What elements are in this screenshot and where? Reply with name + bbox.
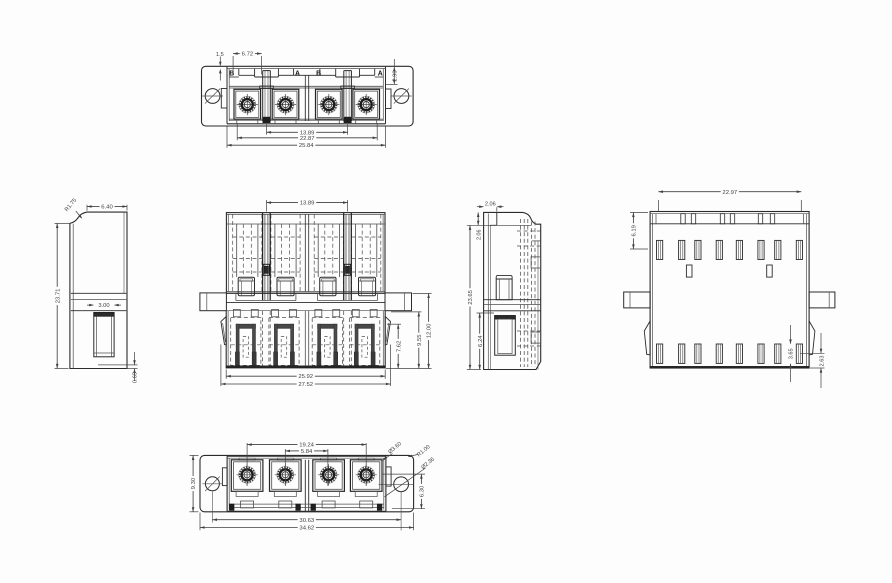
svg-text:6.19: 6.19 bbox=[632, 225, 638, 236]
svg-text:3.65: 3.65 bbox=[789, 348, 795, 359]
svg-text:2.90: 2.90 bbox=[393, 70, 399, 81]
svg-text:6.72: 6.72 bbox=[242, 52, 253, 58]
svg-text:7.62: 7.62 bbox=[396, 341, 402, 352]
svg-text:19.24: 19.24 bbox=[299, 443, 314, 449]
svg-text:0.65: 0.65 bbox=[133, 372, 139, 383]
svg-text:6.30: 6.30 bbox=[420, 485, 426, 497]
svg-text:9.55: 9.55 bbox=[417, 334, 423, 346]
svg-text:B: B bbox=[229, 71, 234, 78]
svg-text:2.06: 2.06 bbox=[476, 230, 482, 241]
svg-text:9.30: 9.30 bbox=[191, 477, 197, 489]
svg-text:23.65: 23.65 bbox=[468, 289, 474, 304]
svg-text:2.06: 2.06 bbox=[485, 201, 496, 207]
svg-text:13.89: 13.89 bbox=[300, 201, 315, 207]
svg-text:25.92: 25.92 bbox=[298, 374, 313, 380]
svg-text:1.5: 1.5 bbox=[216, 52, 224, 58]
svg-text:22.97: 22.97 bbox=[722, 190, 737, 196]
svg-text:12.00: 12.00 bbox=[427, 323, 433, 338]
svg-text:6.40: 6.40 bbox=[101, 205, 113, 211]
svg-text:34.62: 34.62 bbox=[299, 526, 314, 532]
svg-text:2.63: 2.63 bbox=[819, 356, 825, 367]
svg-text:B: B bbox=[316, 71, 321, 78]
svg-text:A: A bbox=[378, 71, 383, 78]
svg-text:30.63: 30.63 bbox=[299, 518, 314, 524]
svg-text:6.24: 6.24 bbox=[478, 335, 484, 347]
svg-text:5.84: 5.84 bbox=[301, 449, 313, 455]
svg-text:22.87: 22.87 bbox=[300, 136, 315, 142]
svg-text:A: A bbox=[295, 71, 300, 78]
svg-text:27.52: 27.52 bbox=[298, 382, 313, 388]
svg-text:3.00: 3.00 bbox=[98, 303, 109, 309]
svg-text:25.84: 25.84 bbox=[299, 143, 314, 149]
svg-text:23.71: 23.71 bbox=[55, 289, 61, 304]
